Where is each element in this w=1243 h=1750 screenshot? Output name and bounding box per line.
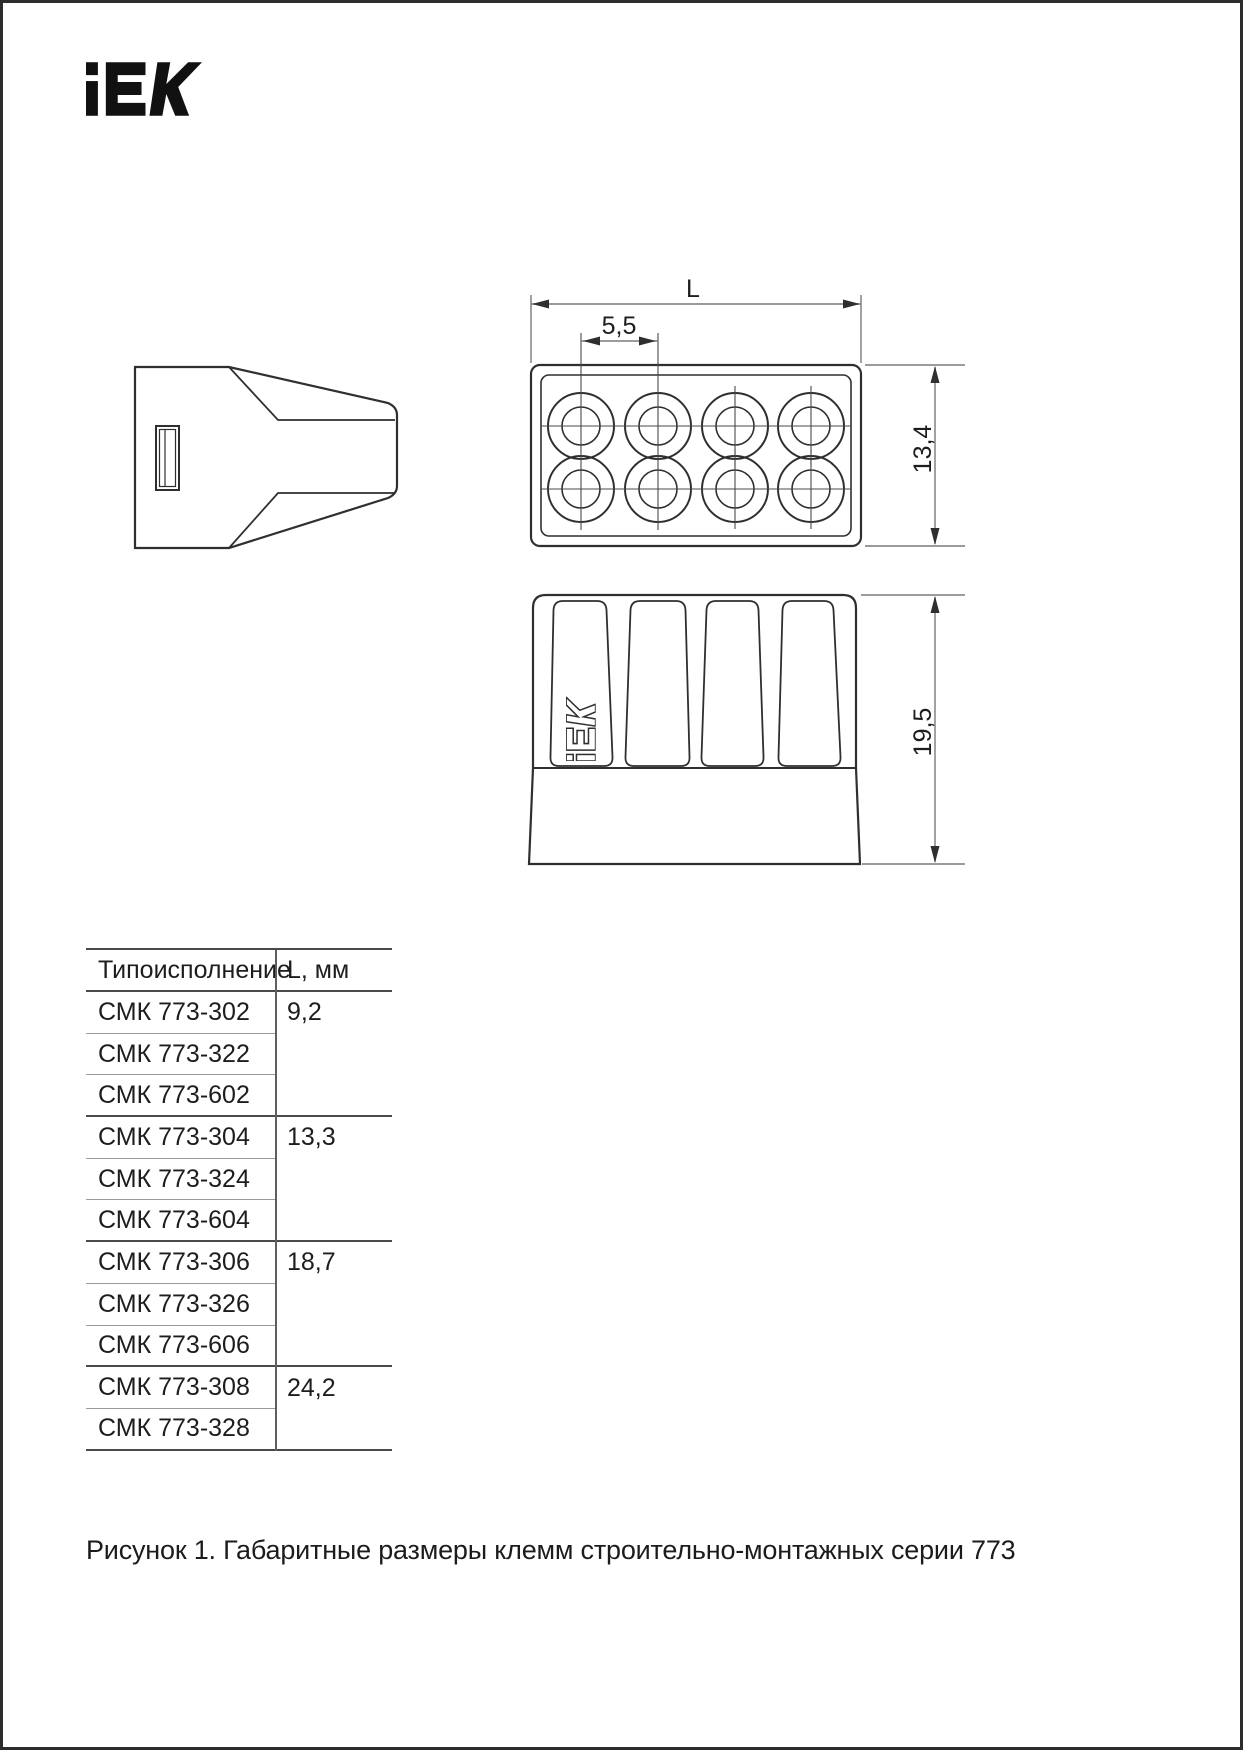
model-cell: СМК 773-302 [86, 992, 275, 1034]
length-cell [275, 1159, 392, 1201]
table-row: СМК 773-604 [86, 1200, 392, 1242]
dim-label-total-height: 19,5 [909, 708, 937, 757]
side-view [135, 367, 397, 548]
arrow-right-icon [639, 337, 656, 346]
table-row: СМК 773-304 13,3 [86, 1117, 392, 1159]
model-cell: СМК 773-306 [86, 1242, 275, 1284]
table-row: СМК 773-326 [86, 1284, 392, 1326]
dimension-body-height: 13,4 [865, 365, 965, 546]
table-row: СМК 773-602 [86, 1075, 392, 1117]
table-row: СМК 773-324 [86, 1159, 392, 1201]
table-row: СМК 773-308 24,2 [86, 1367, 392, 1409]
header-length: L, мм [275, 950, 392, 990]
dim-label-pitch: 5,5 [602, 312, 637, 340]
length-cell [275, 1409, 392, 1449]
crosshairs [541, 333, 851, 530]
model-cell: СМК 773-606 [86, 1326, 275, 1366]
technical-drawing: L 5,5 13,4 [3, 3, 1243, 1750]
model-cell: СМК 773-308 [86, 1367, 275, 1409]
arrow-down-icon [931, 528, 940, 545]
port-circles-inner [562, 407, 830, 508]
dimension-total-height: 19,5 [861, 595, 965, 864]
dim-label-body-height: 13,4 [909, 425, 937, 474]
table-row: СМК 773-322 [86, 1034, 392, 1076]
length-cell [275, 1034, 392, 1076]
length-cell: 24,2 [275, 1367, 392, 1409]
model-cell: СМК 773-604 [86, 1200, 275, 1240]
dimension-pitch: 5,5 [581, 312, 658, 346]
arrow-down-icon [931, 846, 940, 863]
side-view-slot [156, 426, 179, 490]
arrow-left-icon [583, 337, 600, 346]
length-cell [275, 1075, 392, 1115]
header-model: Типоисполнение [86, 950, 275, 990]
arrow-up-icon [931, 366, 940, 383]
dim-label-length: L [686, 275, 700, 303]
top-view: L 5,5 13,4 [531, 275, 965, 546]
table-row: СМК 773-306 18,7 [86, 1242, 392, 1284]
length-cell: 18,7 [275, 1242, 392, 1284]
port-circles [548, 393, 844, 522]
model-cell: СМК 773-328 [86, 1409, 275, 1449]
arrow-left-icon [532, 300, 549, 309]
spec-table: Типоисполнение L, мм СМК 773-302 9,2 СМК… [86, 948, 392, 1451]
length-cell [275, 1326, 392, 1366]
datasheet-page: L 5,5 13,4 [0, 0, 1243, 1750]
model-cell: СМК 773-324 [86, 1159, 275, 1201]
length-cell [275, 1284, 392, 1326]
model-cell: СМК 773-602 [86, 1075, 275, 1115]
figure-caption: Рисунок 1. Габаритные размеры клемм стро… [86, 1535, 1015, 1566]
model-cell: СМК 773-322 [86, 1034, 275, 1076]
arrow-up-icon [931, 596, 940, 613]
front-view: 19,5 [529, 595, 965, 864]
iek-logo-embossed [566, 697, 595, 761]
table-row: СМК 773-302 9,2 [86, 992, 392, 1034]
iek-logo [86, 62, 202, 116]
table-row: СМК 773-606 [86, 1326, 392, 1368]
model-cell: СМК 773-326 [86, 1284, 275, 1326]
table-row: СМК 773-328 [86, 1409, 392, 1451]
length-cell [275, 1200, 392, 1240]
length-cell: 9,2 [275, 992, 392, 1034]
arrow-right-icon [843, 300, 860, 309]
length-cell: 13,3 [275, 1117, 392, 1159]
table-column-divider [275, 950, 277, 1451]
push-buttons [550, 601, 840, 766]
table-header-row: Типоисполнение L, мм [86, 950, 392, 992]
model-cell: СМК 773-304 [86, 1117, 275, 1159]
